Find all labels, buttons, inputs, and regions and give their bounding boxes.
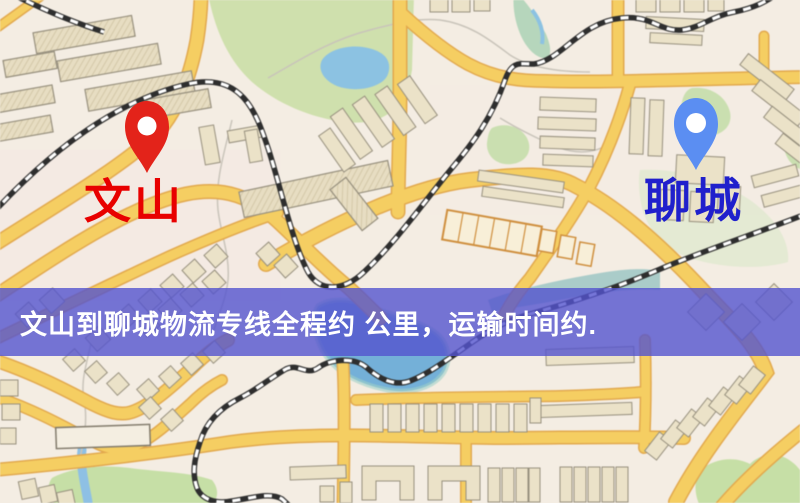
- origin-pin-icon: [117, 97, 177, 175]
- origin-pin-hole: [138, 117, 157, 136]
- destination-label: 聊城: [644, 177, 744, 224]
- origin-label: 文山: [84, 178, 184, 225]
- destination-pin-hole: [686, 113, 706, 133]
- destination-pin-icon: [666, 94, 726, 172]
- destination-pin-body: [674, 98, 718, 170]
- map-image: 文山到聊城物流专线全程约 公里，运输时间约. 文山 聊城: [0, 0, 800, 503]
- map-canvas: [0, 0, 800, 503]
- origin-pin-body: [125, 101, 169, 173]
- route-banner: 文山到聊城物流专线全程约 公里，运输时间约.: [0, 288, 800, 356]
- banner-text: 文山到聊城物流专线全程约 公里，运输时间约.: [20, 303, 597, 342]
